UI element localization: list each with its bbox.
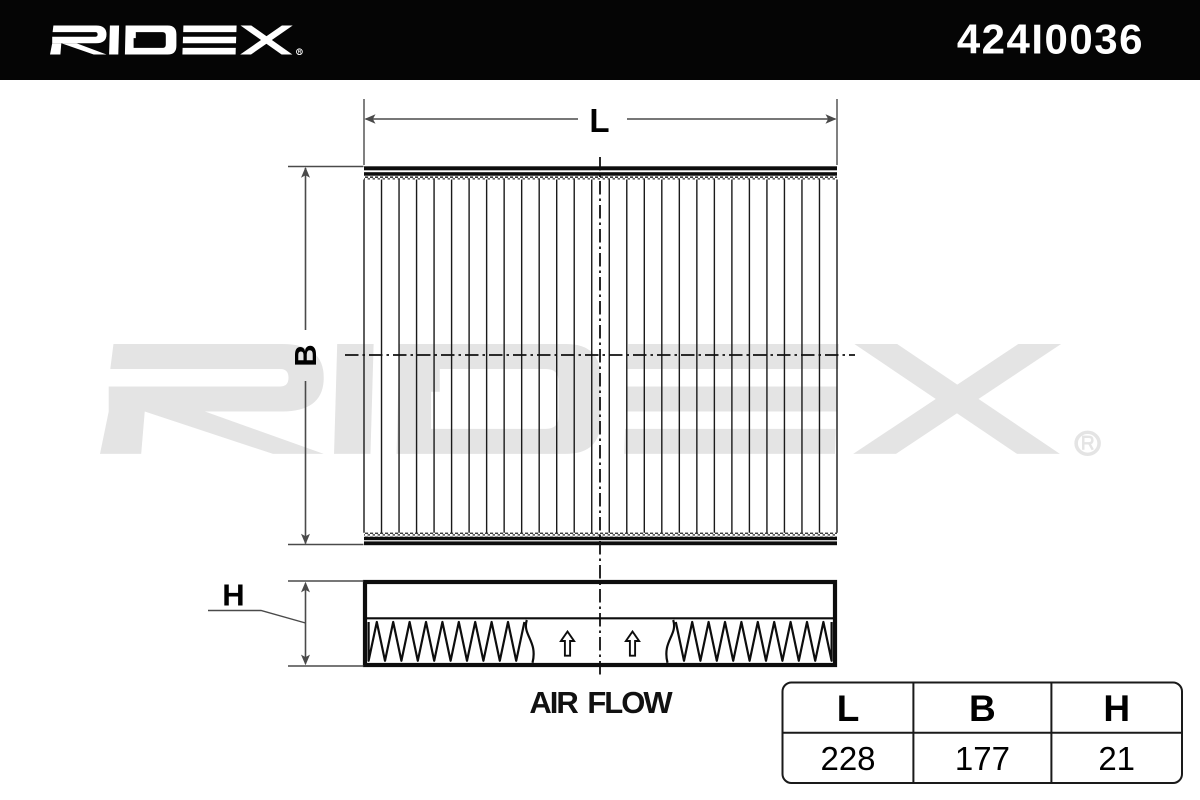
svg-text:B: B: [969, 688, 996, 729]
svg-text:424I0036: 424I0036: [957, 16, 1144, 63]
svg-text:228: 228: [820, 740, 875, 777]
svg-text:L: L: [837, 688, 860, 729]
svg-text:B: B: [288, 344, 323, 366]
svg-text:21: 21: [1098, 740, 1135, 777]
svg-text:H: H: [1103, 688, 1130, 729]
svg-text:H: H: [222, 578, 244, 613]
svg-text:177: 177: [955, 740, 1010, 777]
svg-text:L: L: [589, 102, 609, 139]
svg-text:AIR FLOW: AIR FLOW: [529, 685, 673, 720]
